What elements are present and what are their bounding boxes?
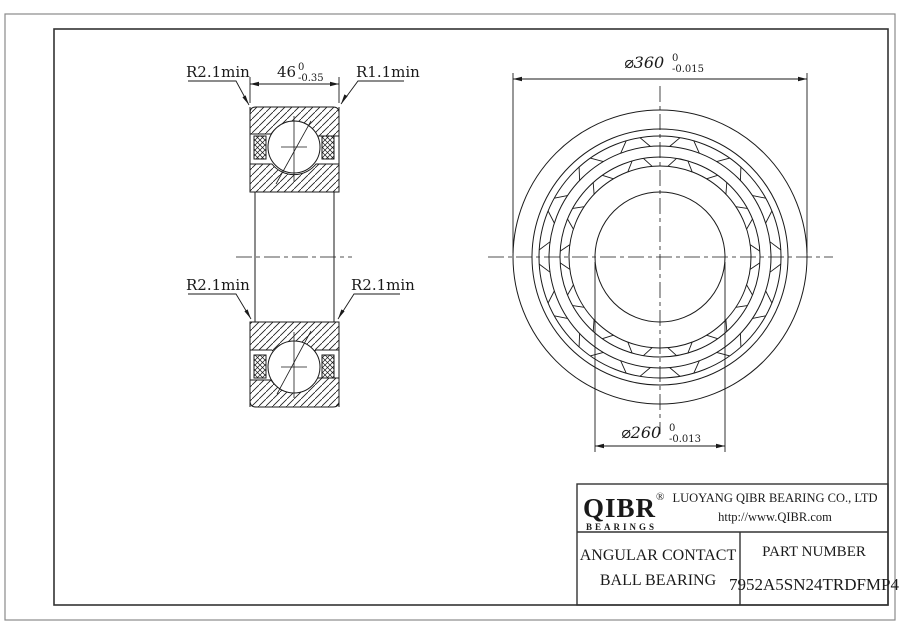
bearing-drawing-svg: 46 0 -0.35 R2.1min R1.1min R2.1min R2.1m… <box>0 0 900 636</box>
bore-dia-tol-lower: -0.013 <box>669 434 701 445</box>
brand-logo-text: QIBR <box>583 493 656 523</box>
width-dim-tol-lower: -0.35 <box>298 73 324 84</box>
outer-dia-value: ⌀360 <box>624 53 664 72</box>
brand-logo-sub: BEARINGS <box>586 522 657 532</box>
width-dim-value: 46 <box>277 63 296 81</box>
registered-mark: ® <box>656 491 664 503</box>
radius-label-top-left: R2.1min <box>186 63 250 81</box>
radius-label-top-right: R1.1min <box>356 63 420 81</box>
bore-dia-value: ⌀260 <box>621 423 661 442</box>
section-view <box>236 107 352 407</box>
front-view <box>488 86 833 434</box>
company-name: LUOYANG QIBR BEARING CO., LTD <box>672 491 877 505</box>
bore-dia-tol-upper: 0 <box>669 423 675 434</box>
cage-right-bottom <box>322 355 334 378</box>
cage-left-top <box>254 136 266 159</box>
drawing-sheet: 46 0 -0.35 R2.1min R1.1min R2.1min R2.1m… <box>0 0 900 636</box>
outer-dia-tol-upper: 0 <box>672 53 678 64</box>
product-type-line1: ANGULAR CONTACT <box>580 547 737 564</box>
company-website: http://www.QIBR.com <box>718 510 832 524</box>
outer-dia-tol-lower: -0.015 <box>672 64 704 75</box>
radius-label-bottom-left: R2.1min <box>186 276 250 294</box>
width-dim-tol-upper: 0 <box>298 62 304 73</box>
part-number-label: PART NUMBER <box>762 544 866 560</box>
cage-right-top <box>322 136 334 159</box>
part-number-value: 7952A5SN24TRDFMP4 <box>729 575 900 594</box>
cage-left-bottom <box>254 355 266 378</box>
brand-logo: QIBR ® BEARINGS <box>583 491 664 532</box>
radius-label-bottom-right: R2.1min <box>351 276 415 294</box>
product-type-line2: BALL BEARING <box>600 572 717 589</box>
